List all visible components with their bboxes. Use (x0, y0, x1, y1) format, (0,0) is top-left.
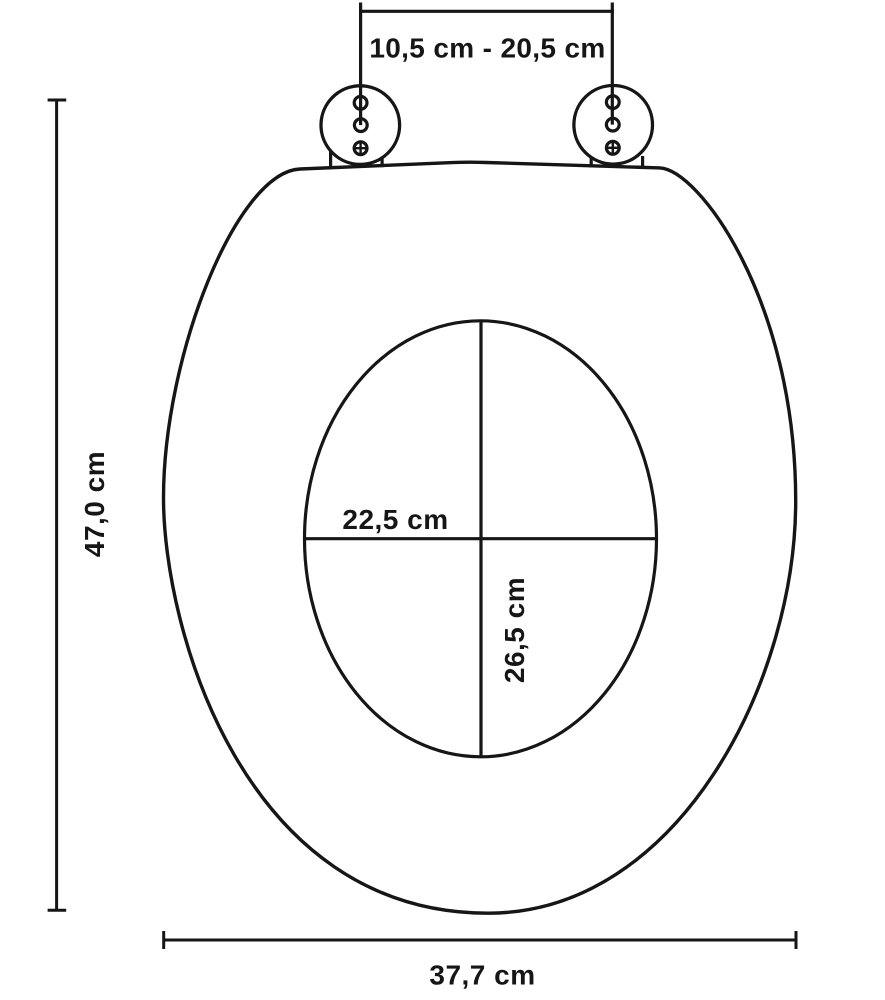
svg-text:10,5 cm - 20,5 cm: 10,5 cm - 20,5 cm (369, 33, 605, 64)
svg-text:26,5 cm: 26,5 cm (499, 577, 530, 683)
svg-text:37,7 cm: 37,7 cm (429, 960, 535, 991)
svg-text:47,0 cm: 47,0 cm (79, 451, 110, 557)
svg-text:22,5 cm: 22,5 cm (342, 504, 448, 535)
